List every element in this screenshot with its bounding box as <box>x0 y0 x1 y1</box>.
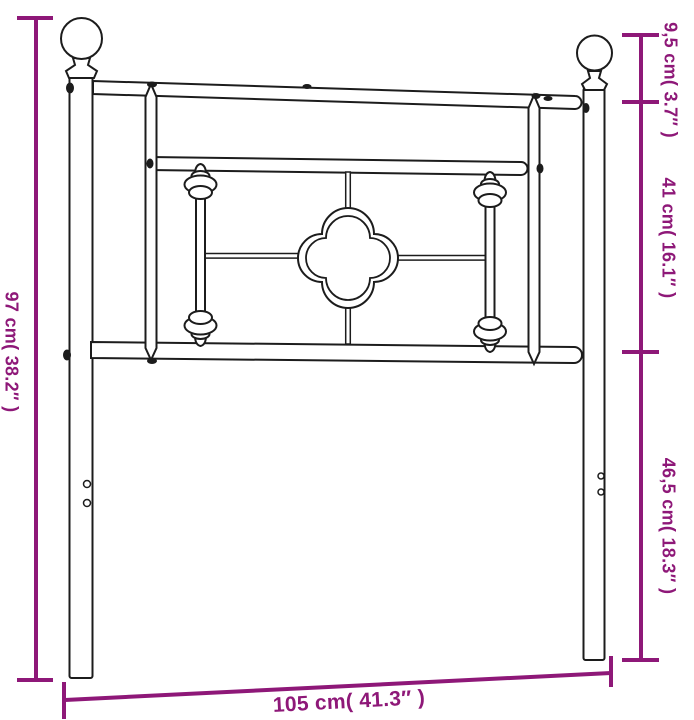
dimension-label-leg-height: 46,5 cm( 18.3″ ) <box>658 458 679 595</box>
right-post <box>577 36 612 661</box>
dimension-label-finial-height: 9,5 cm( 3.7″ ) <box>660 22 681 138</box>
dimension-label-height: 97 cm( 38.2″ ) <box>1 292 22 413</box>
screw-holes <box>84 473 605 507</box>
dimension-label-panel-height: 41 cm( 16.1″ ) <box>658 178 679 299</box>
quatrefoil-ornament <box>298 208 398 308</box>
dimension-line-right-segments <box>622 35 659 660</box>
right-spindle <box>474 172 506 352</box>
dimension-line-height-left <box>17 18 53 680</box>
dimension-diagram: 97 cm( 38.2″ ) 9,5 cm( 3.7″ ) 41 cm( 16.… <box>0 0 694 720</box>
headboard-line-art <box>0 0 694 720</box>
